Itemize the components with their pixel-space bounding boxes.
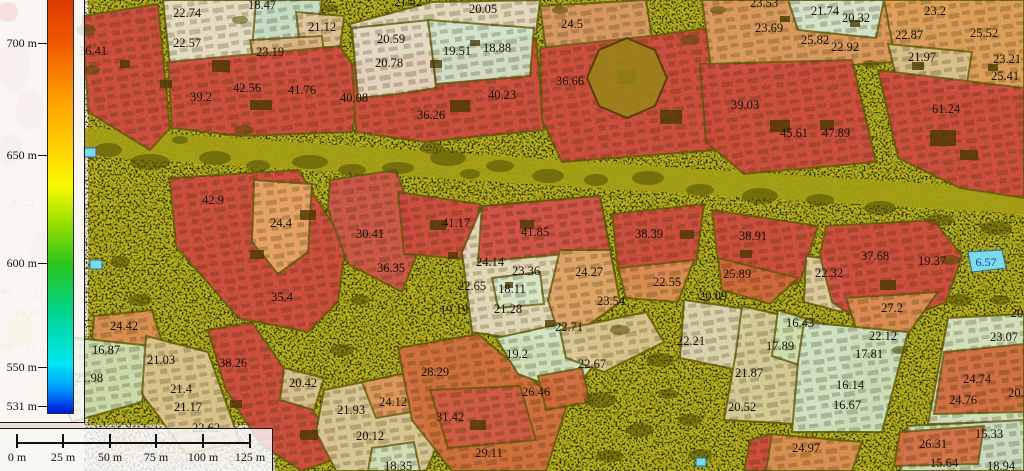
height-label: 40.08 [340,91,368,105]
height-label: 23.07 [990,330,1018,344]
height-label: 20.59 [377,32,405,46]
scale-bar-label: 50 m [88,450,132,465]
scale-bar-tick [155,434,157,448]
tree-clump [646,353,674,367]
height-label: 19.19 [440,303,468,317]
tree-clump [680,35,700,45]
legend-tick-label: 700 m [0,36,37,50]
height-label: 21.87 [735,366,763,380]
scale-bar-tick [109,434,111,448]
courtyard [448,252,458,259]
height-label: 22.32 [815,266,843,280]
height-label: 23.54 [597,294,626,308]
height-label: 23.21 [993,52,1021,66]
height-label: 20.42 [289,376,317,390]
courtyard [230,400,242,408]
courtyard [660,110,682,124]
height-label: 24.76 [949,393,977,407]
height-label: 17.89 [766,339,794,353]
legend-tick-mark [38,367,47,368]
height-label: 23.2 [924,4,946,18]
courtyard [960,150,978,160]
height-label: 25.41 [991,69,1019,83]
scale-bar-label: 125 m [228,450,272,465]
water-patch [696,458,706,466]
height-label: 61.24 [932,102,961,116]
scale-bar-label: 75 m [134,450,178,465]
tree-clump [532,169,564,183]
scale-bar-line [17,442,250,444]
height-label: 26.46 [522,385,550,399]
tree-clump [420,142,444,154]
tree-clump [350,295,370,305]
legend-tick-label: 600 m [0,256,37,270]
courtyard [880,280,896,290]
tree-clump [596,450,624,462]
tree-clump [130,154,170,170]
courtyard [470,420,486,430]
courtyard [470,40,480,46]
scale-bar-label: 0 m [0,450,39,465]
height-label: 18.47 [248,0,276,12]
height-label: 37.68 [861,249,889,263]
height-label: 22.74 [173,6,202,20]
legend-tick-label: 550 m [0,360,37,374]
legend-tick-label: 650 m [0,148,37,162]
height-label: 20.52 [728,400,756,414]
tree-clump [322,4,338,12]
height-label: 22.87 [895,28,923,42]
height-label: 16.14 [836,378,865,392]
tree-clump [292,155,328,169]
height-label: 24.97 [792,441,820,455]
height-label: 41.17 [442,216,470,230]
scale-bar-panel: 0 m25 m50 m75 m100 m125 m [0,428,273,471]
height-label: 24.74 [963,372,992,386]
height-label: 22.21 [677,334,705,348]
height-label: 20.05 [469,2,497,16]
water-patch [90,260,102,269]
height-label: 24.42 [110,319,138,333]
height-label: 18.11 [498,282,526,296]
height-label: 36.66 [556,74,584,88]
legend-tick-mark [38,263,47,264]
tree-clump [199,151,231,165]
courtyard [450,100,470,112]
tree-clump [980,221,1012,235]
height-label: 23.69 [755,21,783,35]
courtyard [430,60,442,68]
height-label: 19.37 [918,254,946,268]
height-label: 26.31 [919,437,947,451]
courtyard [250,250,264,259]
height-label: 47.89 [822,126,850,140]
height-label: 21.28 [494,302,522,316]
height-label: 23.53 [750,0,778,10]
legend-tick-label: 531 m [0,399,37,413]
map-viewport[interactable]: 36.4122.7418.4721.1222.5723.1939.242.564… [0,0,1024,471]
height-label: 20.09 [699,289,727,303]
legend-tick-mark [38,155,47,156]
tree-clump [926,214,954,226]
courtyard [120,60,130,68]
courtyard [212,60,230,72]
tree-clump [892,346,908,354]
height-label: 18.35 [384,459,412,471]
height-label: 38.91 [739,229,767,243]
height-label: 22.55 [653,275,681,289]
height-label: 31.42 [436,410,464,424]
height-label: 40.23 [488,88,516,102]
scale-bar-label: 100 m [181,450,225,465]
height-label: 23.36 [512,264,540,278]
tree-clump [584,392,616,408]
tree-clump [658,389,678,399]
scale-bar-tick [62,434,64,448]
tree-clump [686,184,714,196]
height-label: 25.82 [801,33,829,47]
height-label: 21.42 [394,0,422,9]
height-label: 42.9 [202,193,224,207]
height-label: 21.4 [170,382,193,396]
height-label: 20 [1011,306,1024,320]
octagon-dome-building [587,38,667,118]
height-label: 20.12 [356,429,384,443]
height-label: 27.2 [881,301,903,315]
scale-bar-tick [16,434,18,448]
scale-bar-tick [249,434,251,448]
height-label: 21.03 [147,353,175,367]
tree-clump [862,60,878,68]
height-label: 20.78 [375,56,403,70]
tree-clump [172,136,188,144]
height-label: 19.51 [443,44,471,58]
tree-clump [610,325,630,335]
courtyard [930,130,956,146]
height-label: 23.19 [256,45,284,59]
height-label: 24.27 [575,265,603,279]
height-label: 25.89 [723,267,751,281]
tree-clump [710,6,726,14]
legend-tick-mark [38,406,47,407]
tree-clump [742,188,778,204]
tree-clump [584,174,608,186]
height-label: 21.12 [308,20,336,34]
height-label: 22.12 [869,329,897,343]
tree-clump [128,294,152,306]
height-label: 38.26 [219,356,247,370]
height-label: 22.67 [578,357,606,371]
map-canvas[interactable]: 36.4122.7418.4721.1222.5723.1939.242.564… [0,0,1024,471]
height-label: 21.93 [337,403,365,417]
height-label: 17.81 [855,347,883,361]
tree-clump [486,160,514,172]
courtyard [250,100,272,110]
height-label: 45.61 [780,126,808,140]
height-label: 22.92 [831,40,859,54]
height-label: 21.17 [174,400,202,414]
tree-clump [460,169,480,179]
water-height-label: 6.57 [976,255,997,269]
height-label: 22.57 [173,36,201,50]
courtyard [740,250,752,258]
height-label: 39.2 [190,90,212,104]
tree-clump [626,423,654,437]
tree-clump [948,294,972,306]
tree-clump [990,295,1010,305]
tree-clump [678,414,702,426]
scale-bar-tick [202,434,204,448]
height-label: 20.7 [1008,386,1024,400]
elevation-legend-panel: 700 m650 m600 m550 m531 m [0,0,85,423]
height-label: 20.32 [842,11,870,25]
tree-clump [234,125,254,135]
height-label: 18.94 [987,459,1016,471]
height-label: 24.5 [561,17,583,31]
height-label: 42.56 [233,81,261,95]
water-patch [84,148,96,157]
scale-bar-label: 25 m [41,450,85,465]
tree-clump [338,164,366,176]
tree-clump [232,16,248,24]
elevation-colorbar [47,0,74,414]
height-label: 39.03 [731,98,759,112]
height-label: 21.97 [908,50,936,64]
height-label: 24.12 [379,395,407,409]
legend-tick-mark [38,43,47,44]
tree-clump [110,256,130,268]
height-label: 15.33 [975,427,1003,441]
height-label: 24.14 [476,255,505,269]
height-label: 22.71 [555,320,583,334]
tree-clump [552,6,568,14]
tree-clump [864,201,896,215]
height-label: 22.65 [458,279,486,293]
height-label: 15.64 [930,456,959,470]
height-label: 41.76 [288,83,316,97]
height-label: 36.35 [377,261,405,275]
courtyard [300,210,316,220]
height-label: 24.4 [270,216,293,230]
courtyard [545,320,555,327]
courtyard [300,430,318,440]
height-label: 30.41 [356,227,384,241]
tree-clump [632,171,664,185]
tree-clump [382,162,414,174]
height-label: 38.39 [635,227,663,241]
height-label: 36.26 [417,108,445,122]
height-label: 28.29 [421,365,449,379]
courtyard [680,230,694,239]
height-label: 16.67 [833,398,861,412]
tree-clump [94,143,122,157]
tree-clump [246,160,270,172]
building-texture [700,60,876,174]
courtyard [160,80,172,88]
height-label: 41.85 [521,225,549,239]
height-label: 16.87 [92,343,120,357]
height-label: 18.88 [483,41,511,55]
height-label: 19.2 [506,347,528,361]
height-label: 21.74 [811,4,840,18]
height-label: 35.4 [271,290,294,304]
height-label: 25.52 [970,26,998,40]
tree-clump [806,194,834,206]
tree-clump [330,344,354,356]
height-label: 29.11 [475,446,503,460]
tree-clump [84,65,100,75]
height-label: 16.43 [786,316,814,330]
